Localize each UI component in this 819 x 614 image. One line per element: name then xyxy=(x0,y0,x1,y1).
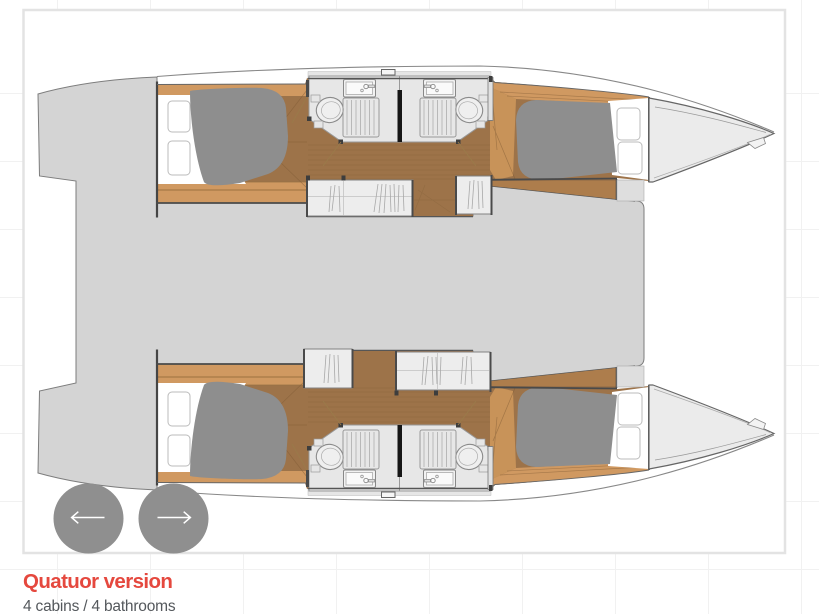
svg-text:4 cabins / 4 bathrooms: 4 cabins / 4 bathrooms xyxy=(23,598,176,614)
svg-text:Quatuor version: Quatuor version xyxy=(23,570,172,593)
